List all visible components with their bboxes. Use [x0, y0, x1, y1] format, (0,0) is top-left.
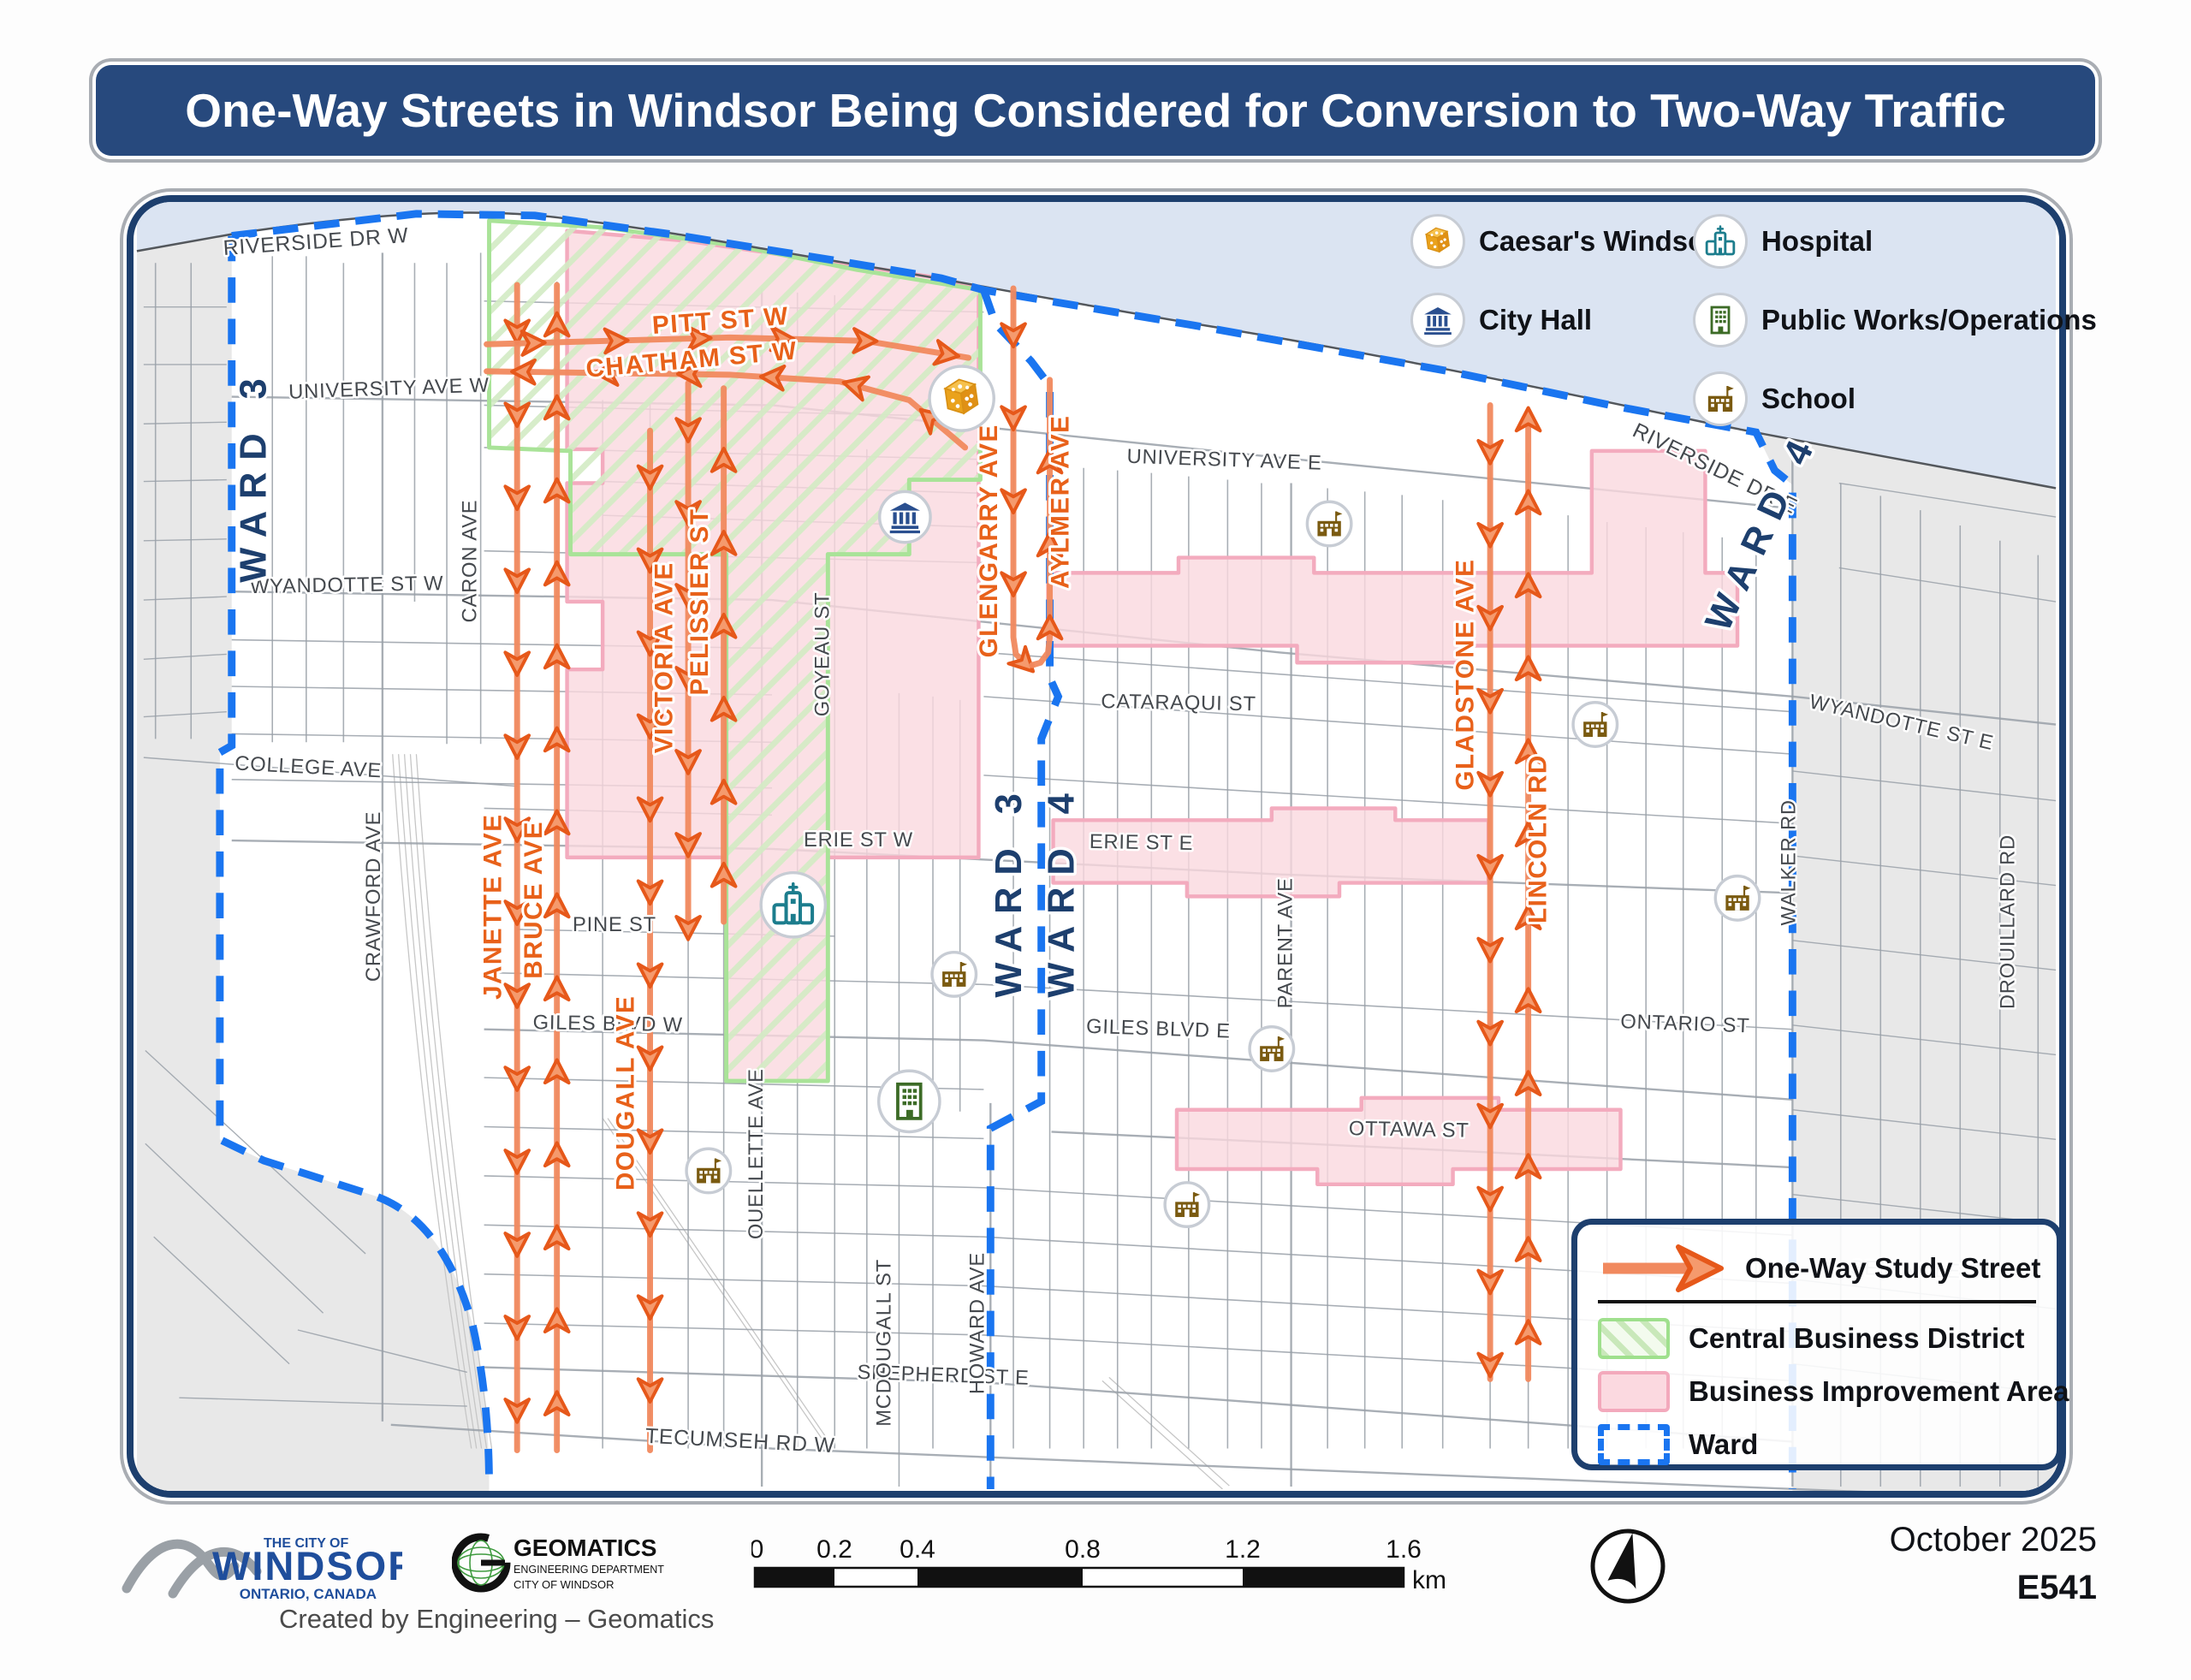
- city-hall-icon: [880, 491, 930, 542]
- street-label-caron-ave: CARON AVE: [460, 500, 482, 623]
- windsor-logo: THE CITY OF WINDSOR ONTARIO, CANADA: [120, 1522, 402, 1612]
- legend-label: City Hall: [1479, 304, 1592, 336]
- street-label-aylmer-ave: AYLMER AVE: [1046, 415, 1074, 589]
- legend-item-cbd: Central Business District: [1598, 1312, 2036, 1365]
- street-label-dougall-ave: DOUGALL AVE: [612, 995, 640, 1190]
- school-icon: [1165, 1183, 1208, 1226]
- street-label-howard-ave: HOWARD AVE: [966, 1252, 989, 1394]
- scale-bar: 0 0.2 0.4 0.8 1.2 1.6 km: [751, 1534, 1462, 1605]
- legend-label: Hospital: [1761, 225, 1873, 258]
- caesars-windsor-icon: [1410, 214, 1465, 269]
- legend-divider: [1598, 1300, 2036, 1303]
- school-icon: [1250, 1027, 1293, 1071]
- scale-tick: 1.6: [1386, 1535, 1422, 1564]
- ward-label: WARD 3: [989, 781, 1030, 997]
- bia-swatch-icon: [1598, 1371, 1670, 1412]
- street-label-lincoln-rd: LINCOLN RD: [1523, 754, 1552, 923]
- cbd-swatch-icon: [1598, 1318, 1670, 1359]
- ward-label: WARD 4: [1041, 781, 1082, 997]
- scale-tick: 0: [751, 1535, 763, 1564]
- geomatics-logo: GEOMATICS ENGINEERING DEPARTMENT CITY OF…: [452, 1523, 666, 1609]
- street-label-janette-ave: JANETTE AVE: [478, 814, 507, 1000]
- street-label-goyeau-st: GOYEAU ST: [811, 592, 834, 717]
- street-label-cataraqui-st: CATARAQUI ST: [1101, 691, 1256, 715]
- street-label-parent-ave: PARENT AVE: [1275, 877, 1297, 1008]
- page-title: One-Way Streets in Windsor Being Conside…: [185, 83, 2005, 138]
- street-label-ontario-st: ONTARIO ST: [1620, 1011, 1750, 1037]
- title-bar: One-Way Streets in Windsor Being Conside…: [96, 65, 2095, 156]
- public-works-operations-icon: [879, 1071, 940, 1131]
- one-way-arrow-icon: [1598, 1244, 1733, 1292]
- scale-tick: 0.8: [1065, 1535, 1101, 1564]
- street-label-pelissier-st: PELISSIER ST: [686, 508, 714, 696]
- school-icon: [686, 1149, 730, 1192]
- school-icon: [1715, 876, 1759, 920]
- map-date: October 2025: [1755, 1521, 2097, 1559]
- legend-item-city-hall: City Hall: [1410, 293, 1592, 347]
- legend-item-ward: Ward: [1598, 1418, 2036, 1471]
- street-label-pine-st: PINE ST: [573, 914, 656, 936]
- legend-item-bia: Business Improvement Area: [1598, 1365, 2036, 1418]
- street-label-gladstone-ave: GLADSTONE AVE: [1451, 559, 1479, 791]
- legend-label: School: [1761, 383, 1856, 415]
- legend-item-one-way: One-Way Study Street: [1598, 1242, 2036, 1295]
- scale-tick: 0.4: [900, 1535, 935, 1564]
- poi-legend: Caesar's Windsor City Hall Hospital Publ…: [1410, 214, 2069, 445]
- geomatics-logo-org: CITY OF WINDSOR: [514, 1578, 614, 1591]
- street-label-giles-blvd-w: GILES BLVD W: [532, 1012, 683, 1036]
- legend-label: One-Way Study Street: [1745, 1252, 2040, 1285]
- ward-swatch-icon: [1598, 1424, 1670, 1465]
- city-hall-icon: [1410, 293, 1465, 347]
- street-label-drouillard-rd: DROUILLARD RD: [1998, 834, 2020, 1009]
- street-label-bruce-ave: BRUCE AVE: [520, 821, 548, 979]
- legend-label: Public Works/Operations: [1761, 304, 2097, 336]
- public-works-icon: [1693, 293, 1748, 347]
- legend-label: Central Business District: [1689, 1322, 2024, 1355]
- legend-item-public-works: Public Works/Operations: [1693, 293, 2097, 347]
- geomatics-logo-name: GEOMATICS: [514, 1535, 656, 1561]
- street-label-glengarry-ave: GLENGARRY AVE: [975, 424, 1003, 657]
- school-icon: [932, 953, 976, 996]
- north-arrow-icon: [1585, 1523, 1671, 1613]
- geomatics-logo-dept: ENGINEERING DEPARTMENT: [514, 1564, 664, 1576]
- scale-tick: 1.2: [1225, 1535, 1261, 1564]
- scale-tick: 0.2: [816, 1535, 852, 1564]
- legend-label: Caesar's Windsor: [1479, 225, 1716, 258]
- ward-label: WARD 3: [233, 366, 274, 582]
- caesar-s-windsor-icon: [929, 366, 994, 430]
- street-label-victoria-ave: VICTORIA AVE: [650, 561, 678, 753]
- windsor-logo-subline: ONTARIO, CANADA: [240, 1586, 377, 1602]
- legend-label: Business Improvement Area: [1689, 1375, 2069, 1408]
- street-label-ouellette-ave: OUELLETTE AVE: [745, 1068, 768, 1239]
- sheet-number: E541: [1755, 1569, 2097, 1607]
- street-label-walker-rd: WALKER RD: [1778, 799, 1800, 925]
- legend-label: Ward: [1689, 1428, 1758, 1461]
- school-icon: [1693, 371, 1748, 426]
- street-label-crawford-ave: CRAWFORD AVE: [363, 811, 385, 982]
- street-label-erie-st-e: ERIE ST E: [1090, 831, 1194, 855]
- legend-item-school: School: [1693, 371, 1856, 426]
- map-legend: One-Way Study Street Central Business Di…: [1571, 1219, 2063, 1470]
- street-label-wyandotte-st-w: WYANDOTTE ST W: [250, 573, 444, 598]
- page: { "title": "One-Way Streets in Windsor B…: [0, 0, 2191, 1680]
- credit-text: Created by Engineering – Geomatics: [279, 1604, 714, 1635]
- hospital-icon: [761, 873, 825, 937]
- legend-item-hospital: Hospital: [1693, 214, 1873, 269]
- street-label-ottawa-st: OTTAWA ST: [1349, 1118, 1470, 1142]
- windsor-logo-name: WINDSOR: [212, 1543, 402, 1588]
- school-icon: [1573, 703, 1617, 746]
- hospital-icon: [1693, 214, 1748, 269]
- street-label-mcdougall-st: MCDOUGALL ST: [874, 1259, 896, 1427]
- legend-item-caesars: Caesar's Windsor: [1410, 214, 1716, 269]
- school-icon: [1307, 502, 1351, 545]
- scale-unit: km: [1412, 1566, 1446, 1594]
- street-label-erie-st-w: ERIE ST W: [804, 829, 913, 852]
